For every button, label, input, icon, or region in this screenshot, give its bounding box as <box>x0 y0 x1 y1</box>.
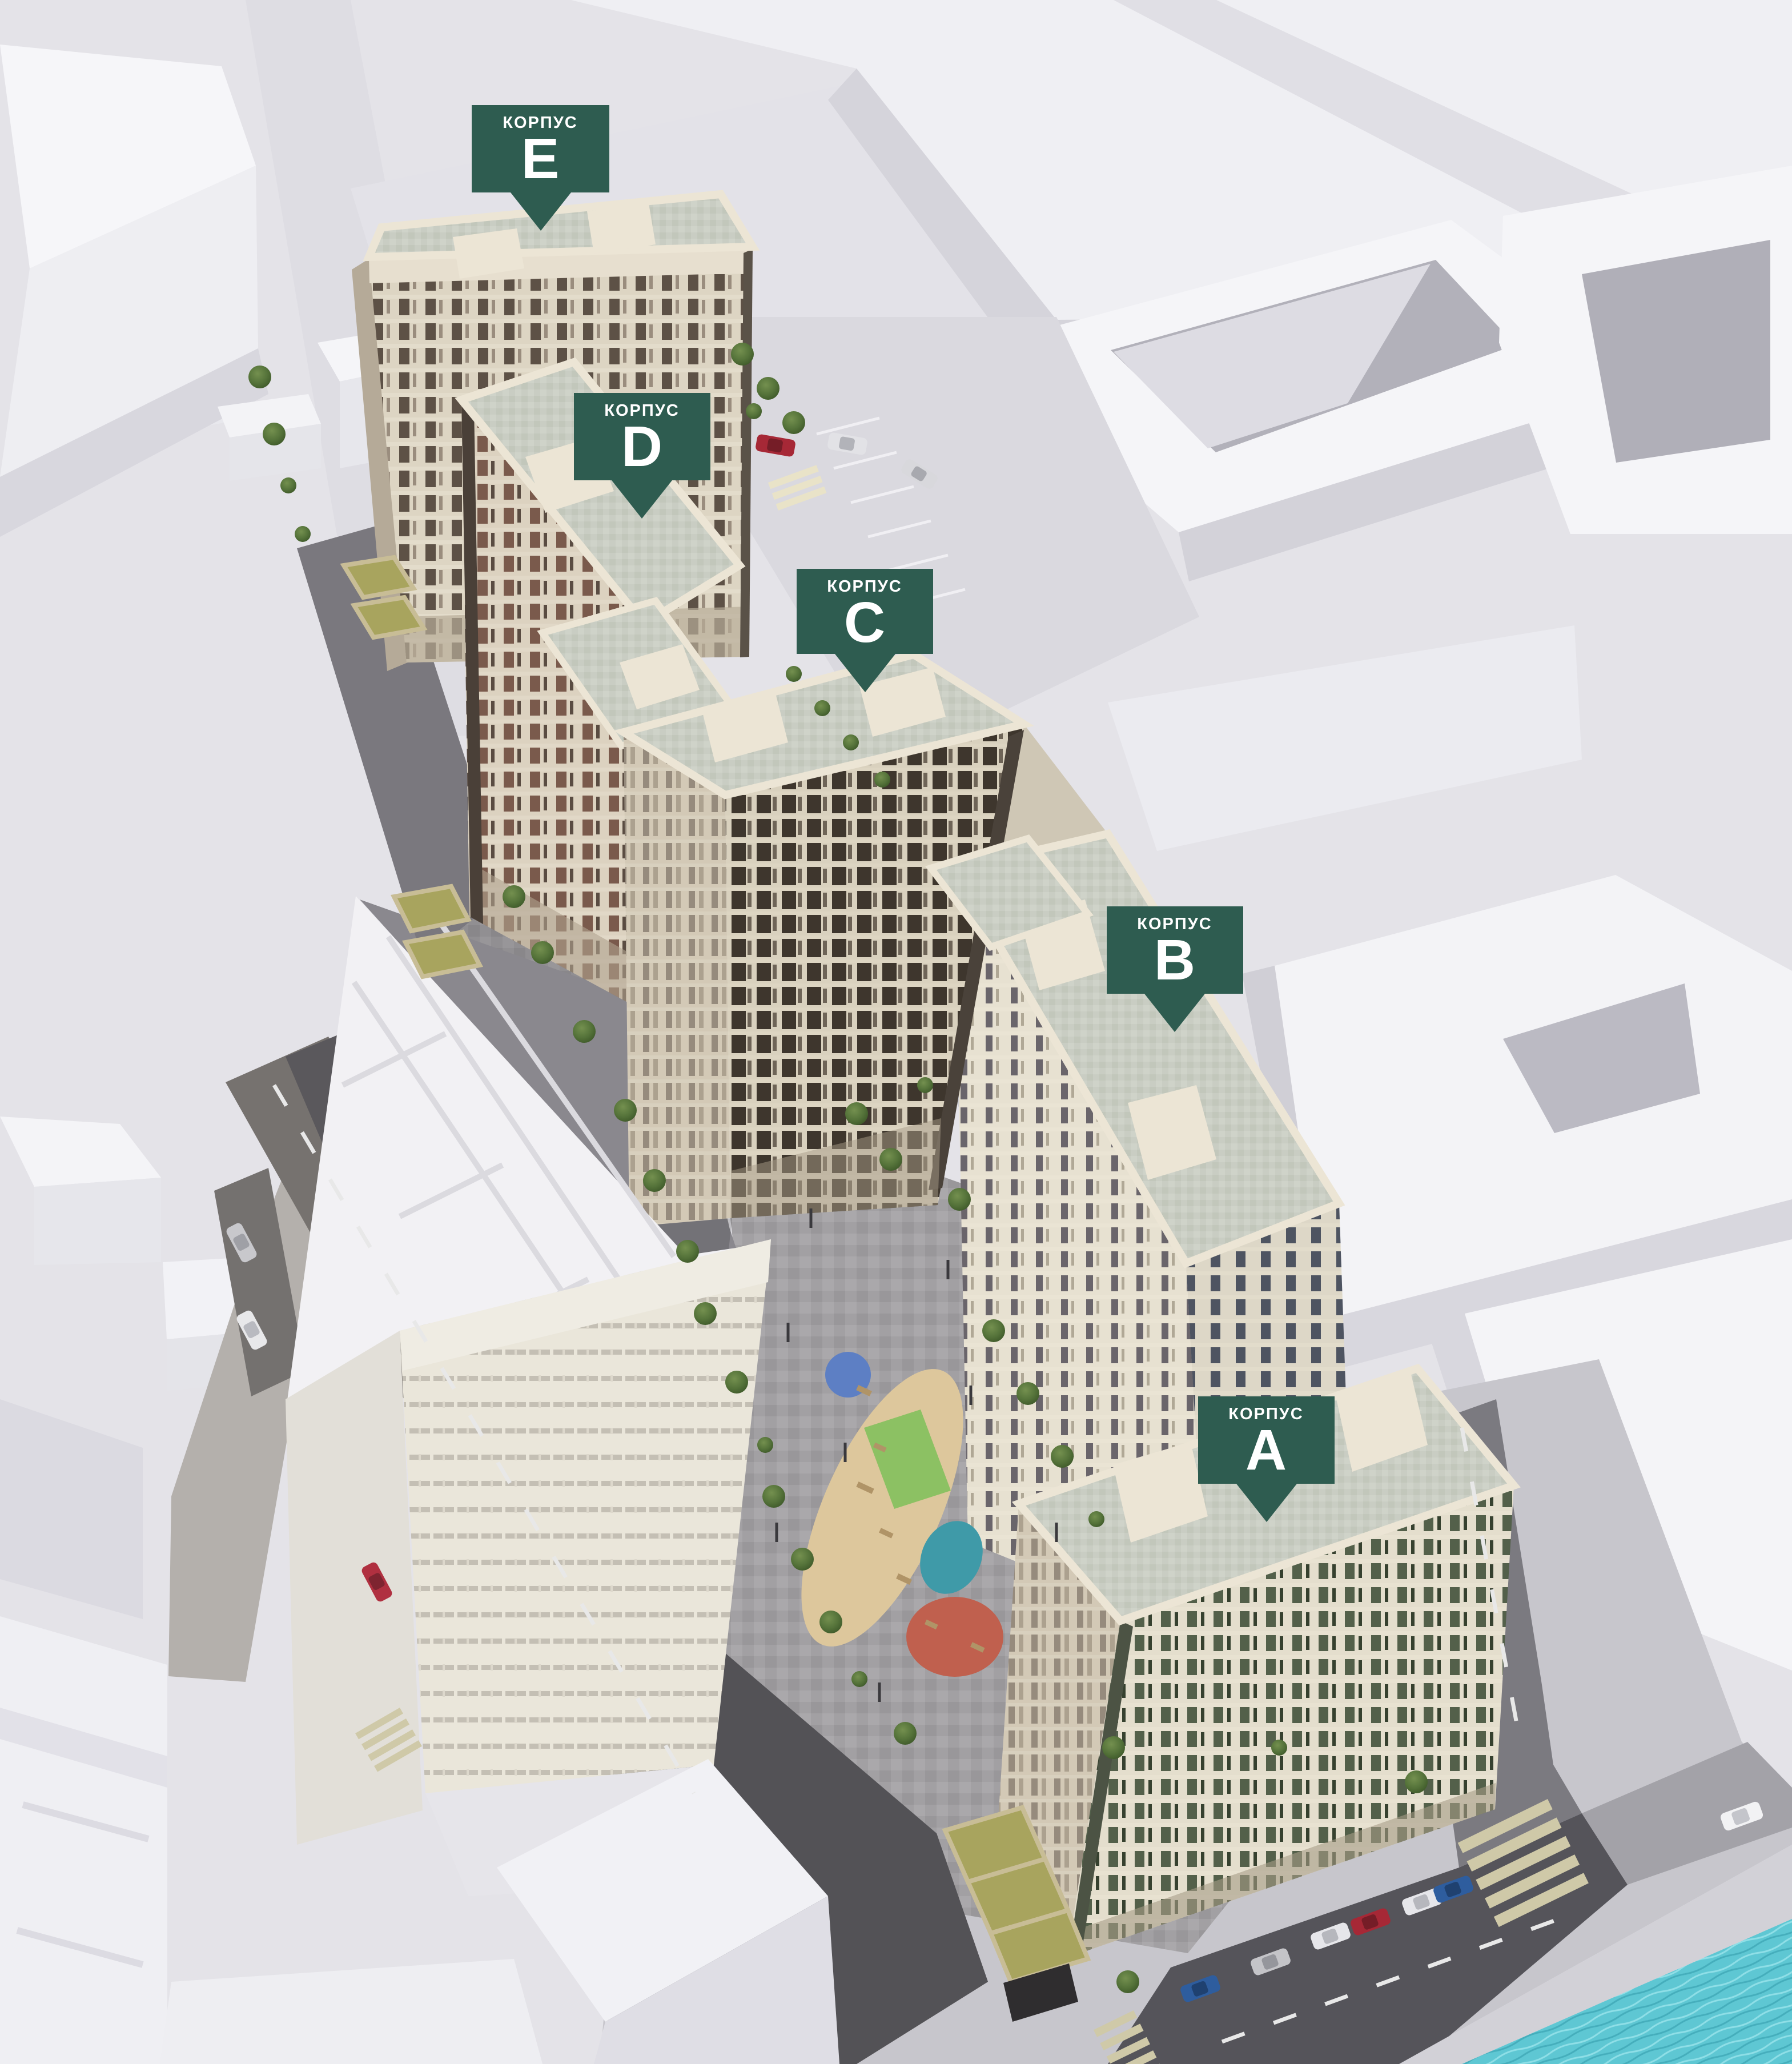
svg-text:B: B <box>1154 928 1195 992</box>
svg-text:A: A <box>1245 1418 1287 1482</box>
svg-text:C: C <box>844 591 885 654</box>
svg-text:E: E <box>521 127 560 191</box>
svg-text:D: D <box>621 415 662 479</box>
